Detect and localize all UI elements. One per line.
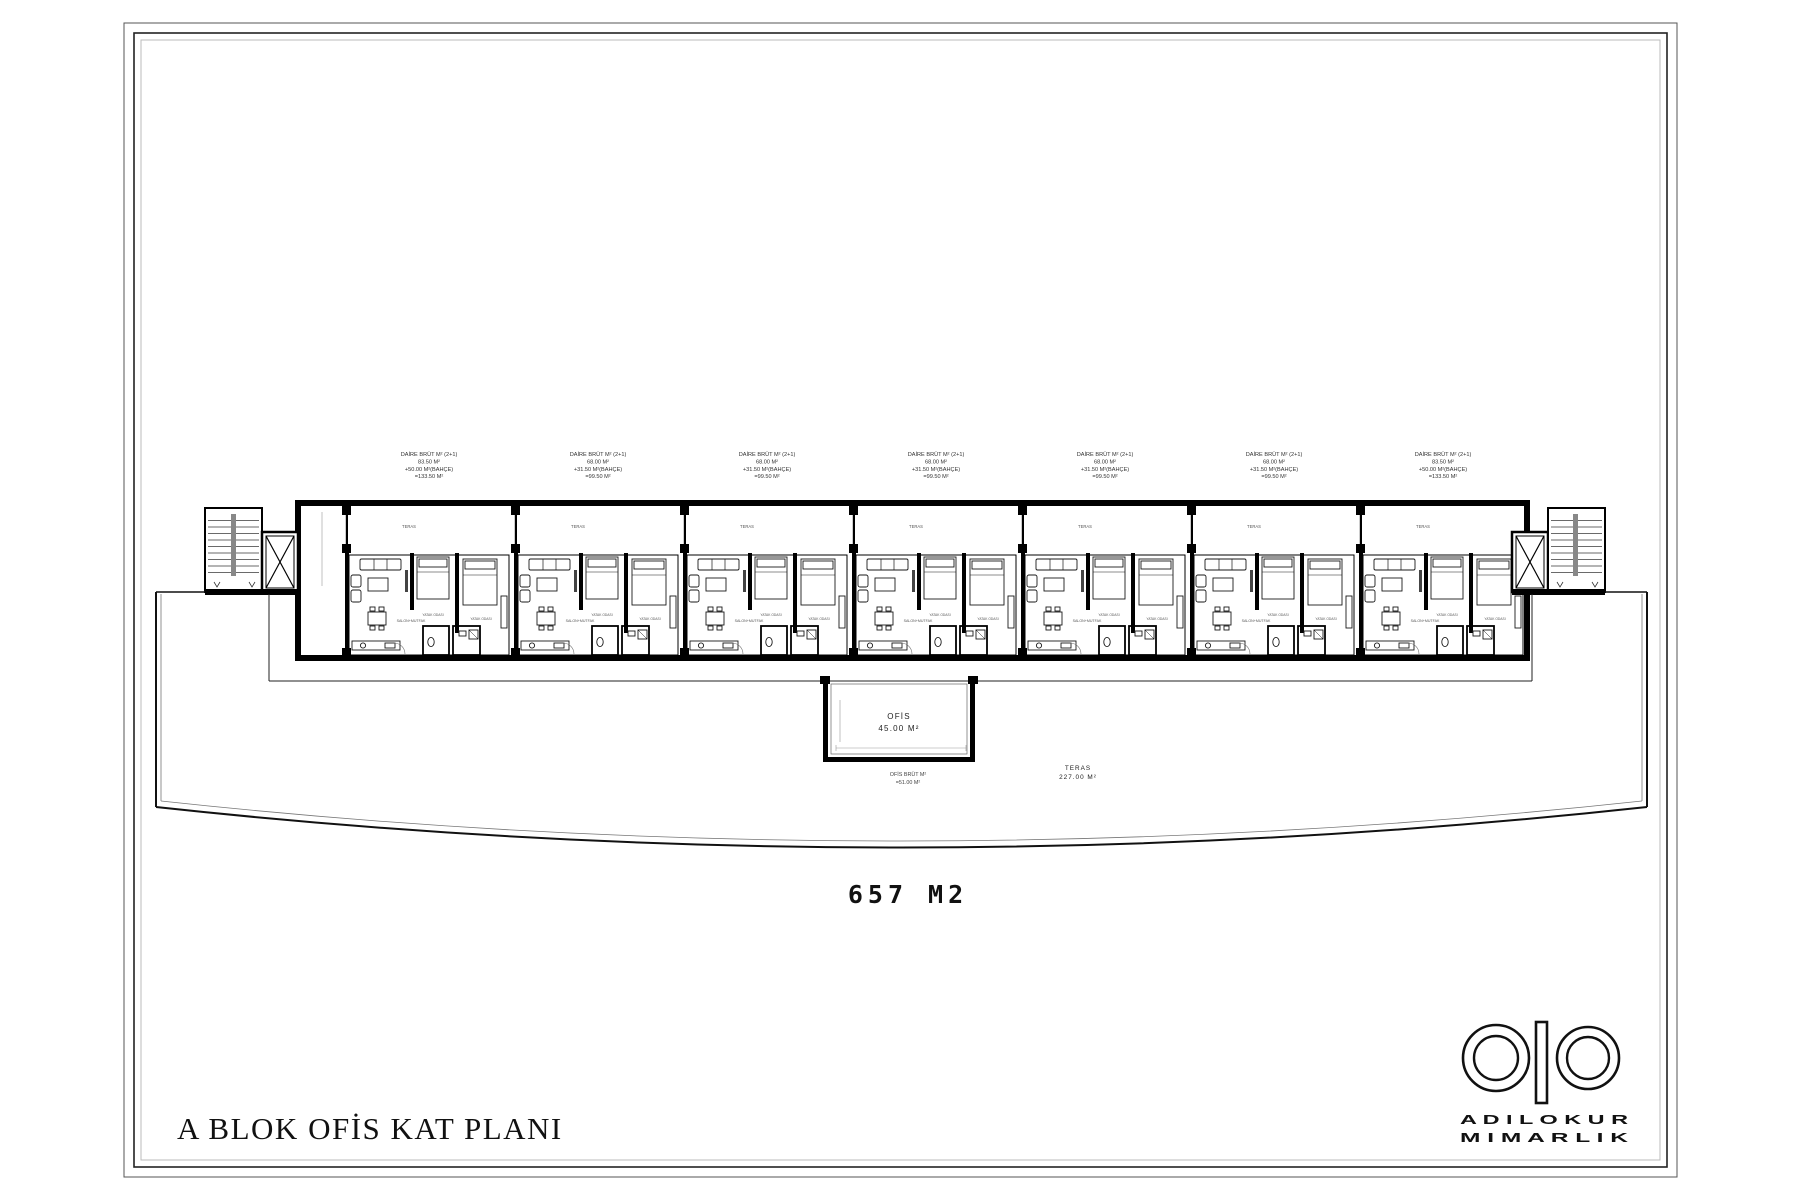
unit-area-label-2: DAİRE BRÜT M² (2+1)68.00 M²+31.50 M²(BAH… [570, 451, 627, 480]
terrace-curved-edge [156, 807, 1647, 848]
ofis-bottom-wall [823, 757, 975, 762]
unit-area-labels: DAİRE BRÜT M² (2+1)83.50 M²+50.00 M²(BAH… [401, 451, 1472, 480]
apartment-unit-2 [511, 506, 678, 657]
terrace-curved-edge-inner [161, 801, 1642, 841]
apartment-unit-5 [1018, 506, 1185, 657]
ofis-left-wall [823, 682, 828, 762]
teras-annotation: TERAS 227.00 M² [1059, 765, 1097, 781]
apartment-unit-1 [342, 506, 509, 657]
stair-stringer [1573, 514, 1578, 576]
ofis-box: OFİS 45.00 M² OFİS BRÜT M² =51.00 M² [820, 676, 978, 786]
unit-area-label-7: DAİRE BRÜT M² (2+1)83.50 M²+50.00 M²(BAH… [1415, 451, 1472, 480]
building-strip [295, 500, 1530, 661]
building-top-wall [295, 500, 1530, 506]
logo-bar [1536, 1022, 1547, 1103]
building-bottom-wall [295, 655, 1530, 661]
apartment-unit-4 [849, 506, 1016, 657]
logo-left-circle-inner [1474, 1036, 1518, 1080]
unit-area-label-5: DAİRE BRÜT M² (2+1)68.00 M²+31.50 M²(BAH… [1077, 451, 1134, 480]
unit-area-label-6: DAİRE BRÜT M² (2+1)68.00 M²+31.50 M²(BAH… [1246, 451, 1303, 480]
floor-plan-drawing: TERAS SALON+MUTFAK [0, 0, 1800, 1200]
unit-area-label-3: DAİRE BRÜT M² (2+1)68.00 M²+31.50 M²(BAH… [739, 451, 796, 480]
total-area-text: 657 M2 [848, 880, 968, 909]
ofis-brut-label: OFİS BRÜT M² [890, 771, 927, 778]
apartment-unit-6 [1187, 506, 1354, 657]
unit-area-label-4: DAİRE BRÜT M² (2+1)68.00 M²+31.50 M²(BAH… [908, 451, 965, 480]
teras-name: TERAS [1065, 765, 1091, 772]
logo-right-circle-inner [1567, 1037, 1609, 1079]
ofis-right-wall [970, 682, 975, 762]
logo-text-line2: M I M A R L I K [1460, 1130, 1629, 1145]
architect-logo: A D I L O K U R M I M A R L I K [1460, 1022, 1629, 1145]
apartment-unit-3 [680, 506, 847, 657]
ofis-brut-total: =51.00 M² [896, 780, 921, 786]
left-core [205, 508, 298, 595]
units-layer [342, 506, 1523, 657]
core-bottom-wall [1512, 589, 1605, 595]
core-bottom-wall [205, 589, 298, 595]
ofis-name: OFİS [887, 712, 910, 721]
ofis-area: 45.00 M² [878, 724, 919, 733]
teras-area: 227.00 M² [1059, 774, 1097, 781]
stair-stringer [231, 514, 236, 576]
unit-area-label-1: DAİRE BRÜT M² (2+1)83.50 M²+50.00 M²(BAH… [401, 451, 458, 480]
drawing-sheet: TERAS SALON+MUTFAK [0, 0, 1800, 1200]
logo-text-line1: A D I L O K U R [1460, 1112, 1629, 1127]
page-title: A BLOK OFİS KAT PLANI [177, 1111, 563, 1146]
apartment-unit-7 [1356, 506, 1523, 657]
